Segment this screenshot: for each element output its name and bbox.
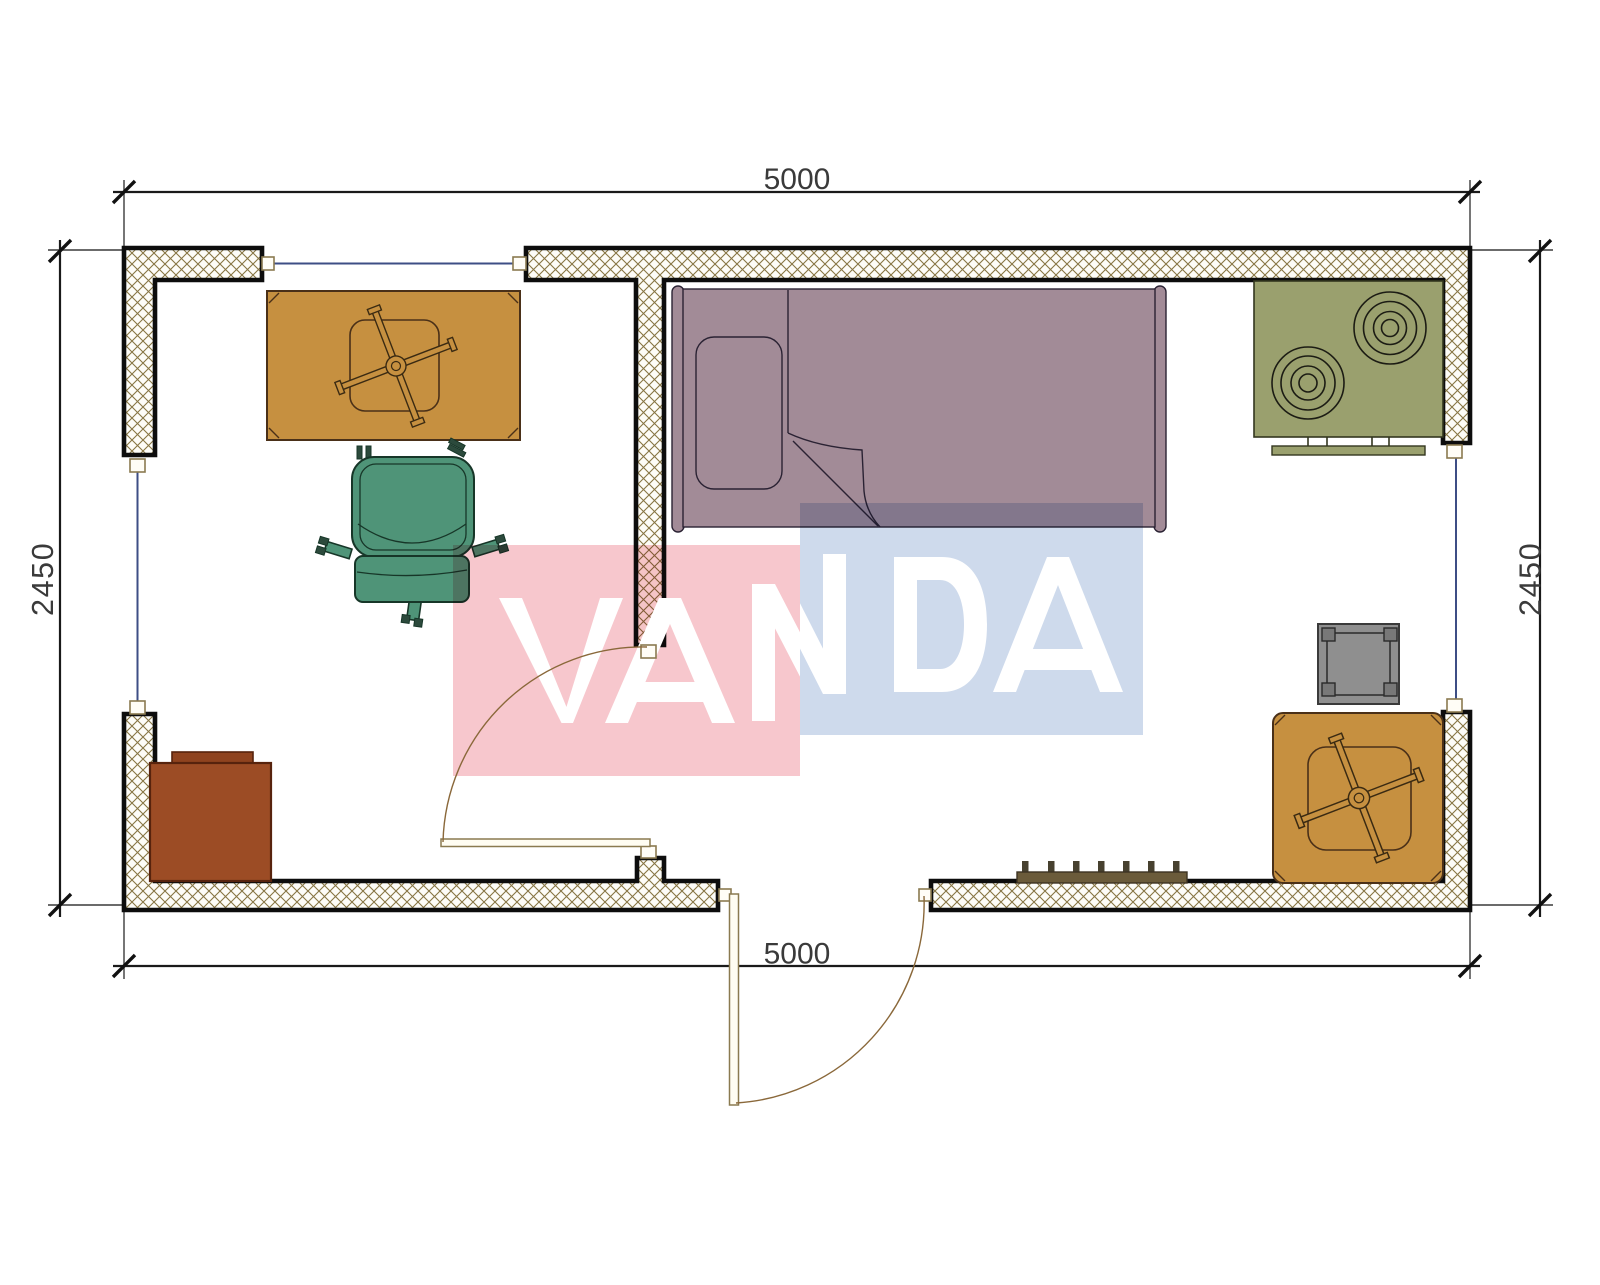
svg-text:5000: 5000 [764, 938, 831, 971]
svg-text:2450: 2450 [1514, 542, 1548, 616]
svg-text:5000: 5000 [764, 163, 831, 196]
svg-text:2450: 2450 [26, 542, 60, 616]
